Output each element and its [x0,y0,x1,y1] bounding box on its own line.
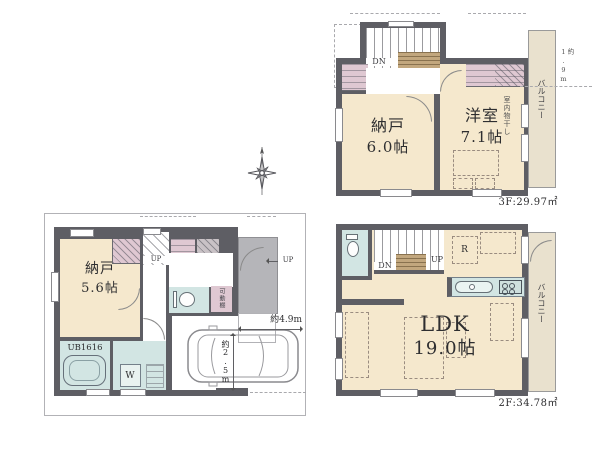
stairs-2f-up-label: UP [427,256,447,264]
window-marker [70,229,94,237]
window-marker [335,108,343,142]
boundary-dash-line [140,216,196,217]
stairs-2f-dn-label: DN [374,262,396,270]
window-marker [455,389,495,397]
hall-1f [169,253,233,287]
area-label-2f: 2F:34.78㎡ [458,399,558,409]
window-marker [472,189,502,197]
boundary-dash-line [468,13,526,14]
window-marker [521,134,529,162]
stairs-3f-dn-label: DN [366,58,392,66]
dimension-car-length-label: 約4.9m [256,316,302,325]
shoe-cabinet [171,239,195,253]
window-marker [521,318,529,358]
boundary-dash-line [247,216,276,217]
dimension-line-car-depth [233,334,234,390]
window-marker [380,189,412,197]
bathtub-inner-icon [69,360,100,381]
room-3f-yoshitsu-size: 7.1帖 [440,130,524,145]
window-marker [51,272,59,302]
movable-shelf-label: 可動棚 [218,288,224,310]
arrowhead [263,258,269,264]
wall-2f-stub [342,299,404,305]
arrowhead [300,326,306,332]
dimension-car-depth-label: 約2.5m [221,340,229,386]
hall-3f [366,68,440,94]
car-icon [185,324,301,388]
entrance-up-arrow [268,261,278,262]
washroom-cabinet [146,364,164,388]
room-2f-ldk-size: 19.0帖 [380,340,510,358]
room-2f-ldk-name: LDK [380,314,510,335]
stairs-2f-landing [396,254,426,270]
indoor-drying-label: 室内物干し [503,96,510,160]
balcony-3f: バルコニー [528,30,556,188]
bathroom-ub-label: UB1616 [60,344,110,353]
room-3f-yoshitsu-name: 洋室 [440,108,524,124]
toilet-tank-icon [346,234,358,240]
dimension-3f-label: 約1.9m [560,48,573,86]
window-marker [86,389,110,396]
refrigerator-space: R [452,236,478,264]
window-marker [521,236,529,264]
sink-drain-icon [469,284,475,290]
window-marker [335,358,343,380]
balcony-3f-label: バルコニー [537,79,545,119]
arrowhead [230,388,236,394]
entrance-up-label: UP [279,257,297,264]
stairs-1f-up-label: UP [143,256,169,263]
room-1f-nando-name: 納戸 [60,262,140,276]
burner-icon [509,289,515,295]
window-marker [388,21,414,27]
cupboard-outline [480,232,516,254]
movable-shelf: 可動棚 [211,286,232,312]
closet-3f-hatch [495,64,524,86]
window-marker [380,389,418,397]
closet-3f-left [342,64,368,91]
balcony-2f-label: バルコニー [537,283,545,323]
boundary-dash-line [350,13,440,14]
stove-icon [499,280,522,294]
compass-icon [244,145,280,197]
window-marker [521,104,529,128]
washer-space: W [120,364,141,387]
shoe-cabinet-hatch [197,239,219,253]
furniture-2f-sofa [345,312,369,378]
floor-plan-sheet: バルコニー DN 納戸 6.0帖 洋室 7.1帖 室内物干し 約1.9m 3F:… [0,0,600,449]
furniture-3f-box [475,178,495,189]
room-3f-nando-size: 6.0帖 [342,140,434,155]
burner-icon [502,289,508,295]
window-marker [120,389,146,396]
area-label-3f: 3F:29.97㎡ [458,198,558,208]
closet-1f [112,239,140,264]
dimension-chain-line [520,86,592,87]
toilet-bowl-icon [347,241,359,257]
window-marker [143,228,161,235]
dimension-line-car-length [239,329,302,330]
furniture-3f-bed [453,150,499,176]
parking-dash-line [250,392,306,393]
toilet-tank-icon [173,291,177,308]
stairs-3f-landing [398,52,440,68]
window-marker [335,312,343,338]
furniture-3f-box [453,178,473,189]
arrowhead [230,330,236,336]
toilet-bowl-icon [179,292,195,307]
